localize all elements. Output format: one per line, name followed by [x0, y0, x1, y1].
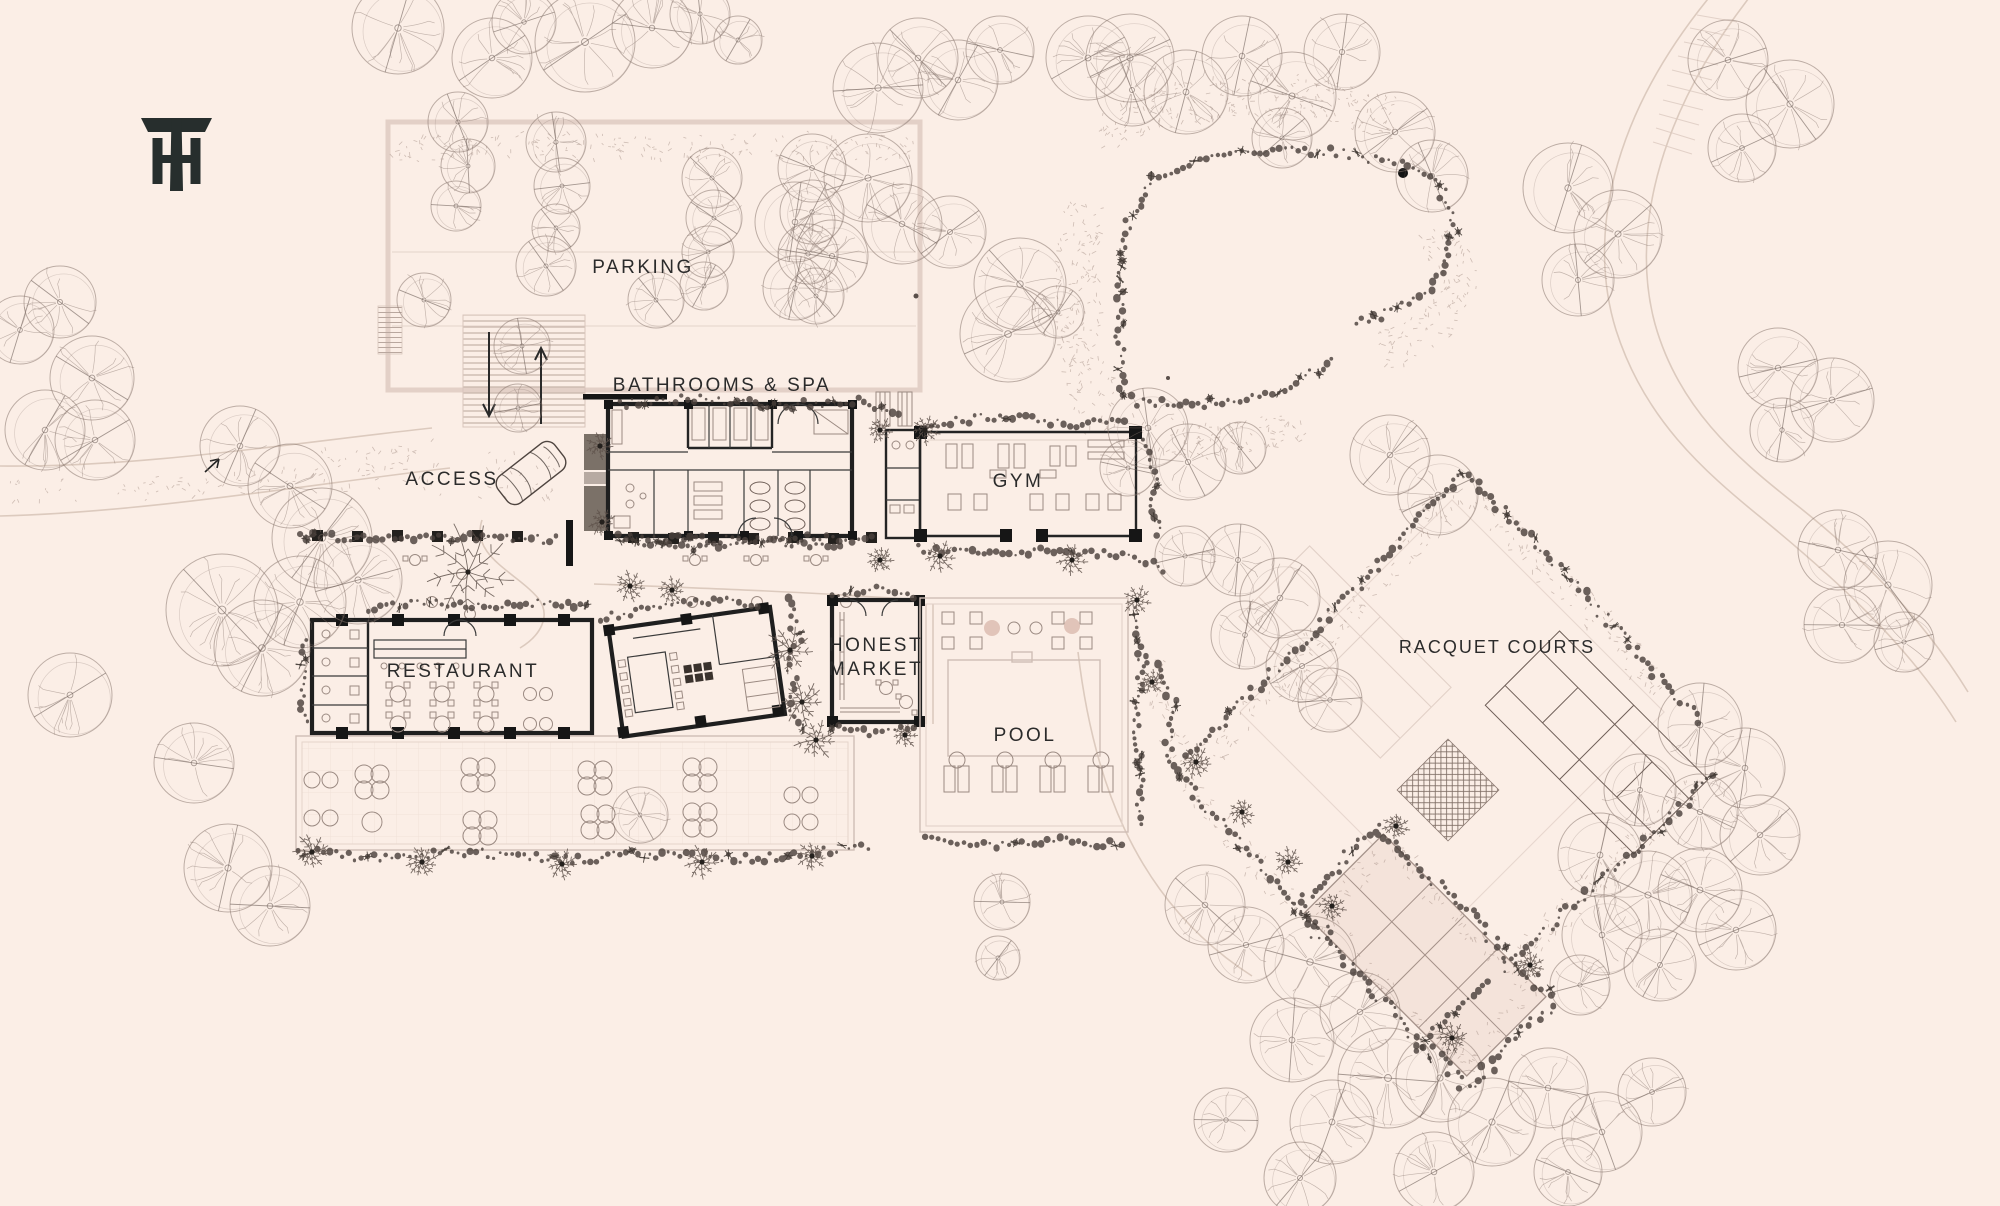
wall-stub: [566, 520, 573, 566]
label-pool: POOL: [994, 725, 1057, 746]
small-dot: [914, 294, 919, 299]
small-dot: [1166, 376, 1170, 380]
parking-ramp: [463, 315, 585, 427]
label-honest-market-line2: MARKET: [829, 659, 923, 680]
stair-icon: [378, 306, 402, 354]
label-restaurant: RESTAURANT: [387, 661, 539, 682]
label-bathrooms-spa: BATHROOMS & SPA: [613, 375, 831, 396]
label-access: ACCESS: [405, 469, 498, 490]
site-plan-canvas: PARKING BATHROOMS & SPA ACCESS GYM RESTA…: [0, 0, 2000, 1206]
planter-blob: [1064, 618, 1080, 634]
patio-paving: [302, 742, 848, 844]
floor-plan-stage: PARKING BATHROOMS & SPA ACCESS GYM RESTA…: [0, 0, 2000, 1206]
label-parking: PARKING: [592, 257, 694, 278]
label-racquet-courts: RACQUET COURTS: [1399, 637, 1595, 657]
entry-slab: [584, 472, 606, 484]
planter-blob: [984, 620, 1000, 636]
label-honest-market-line1: HONEST: [829, 635, 923, 656]
label-gym: GYM: [993, 471, 1044, 492]
